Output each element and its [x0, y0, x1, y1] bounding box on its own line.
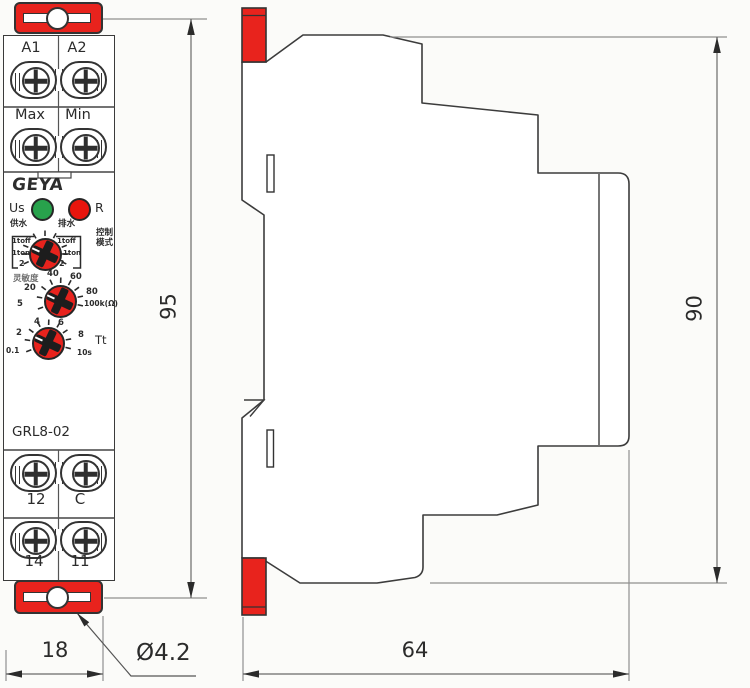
sens-tick-5: 5: [17, 300, 23, 309]
terminal-row-max-min: [10, 128, 107, 166]
screw-min: [72, 134, 100, 162]
screw-max: [22, 134, 50, 162]
relay-led-red: [68, 198, 91, 221]
side-vent-slot-lower: [267, 430, 274, 467]
terminal-a2: [60, 61, 107, 99]
screw-c: [72, 460, 100, 488]
terminal-min: [60, 128, 107, 166]
timer-tick-8: 8: [78, 331, 84, 340]
mode-side-label-2: 模式: [96, 239, 113, 248]
screw-a1: [22, 67, 50, 95]
mode-left-opt-toff: 1toff: [12, 238, 31, 245]
led-label-r: R: [95, 202, 104, 215]
screw-12: [22, 460, 50, 488]
sens-tick-40: 40: [47, 270, 59, 279]
timer-tick-10s: 10s: [77, 349, 92, 357]
sens-tick-20: 20: [24, 284, 36, 293]
terminal-label-c: C: [72, 492, 88, 507]
mode-side-label-1: 控制: [96, 229, 113, 238]
led-label-us: Us: [9, 202, 25, 215]
dim-front-width: 18: [36, 640, 74, 661]
screw-14: [22, 527, 50, 555]
mode-left-opt-2: 2: [19, 260, 25, 268]
dim-front-height: 95: [159, 286, 180, 328]
mode-left-opt-ton: 1ton: [12, 250, 30, 257]
mode-right-opt-ton: 1ton: [63, 250, 81, 257]
sens-tick-80: 80: [86, 288, 98, 297]
screw-a2: [72, 67, 100, 95]
timer-knob[interactable]: [32, 327, 65, 360]
side-view-outline: [242, 35, 629, 583]
terminal-label-min: Min: [62, 108, 94, 123]
model-label: GRL8-02: [12, 426, 70, 440]
terminal-label-a2: A2: [66, 41, 88, 56]
brand-logo: GEYA: [11, 177, 64, 194]
dim-side-height: 90: [685, 288, 706, 330]
power-led-green: [31, 198, 54, 221]
terminal-label-a1: A1: [20, 41, 42, 56]
timer-tick-2: 2: [16, 329, 22, 338]
terminal-label-max: Max: [14, 108, 46, 123]
dim-side-depth: 64: [394, 640, 436, 661]
timer-label: Tt: [95, 335, 107, 347]
mode-heading-supply: 供水: [10, 220, 27, 229]
timer-tick-6: 6: [58, 319, 64, 328]
mode-right-opt-toff: 1toff: [57, 238, 76, 245]
terminal-max: [10, 128, 57, 166]
mode-heading-drain: 排水: [58, 220, 75, 229]
terminal-c: [60, 454, 107, 492]
terminal-label-11: 11: [69, 554, 91, 569]
side-view: [242, 8, 629, 615]
terminal-a1: [10, 61, 57, 99]
sens-tick-60: 60: [70, 273, 82, 282]
top-mount-hole: [46, 7, 69, 30]
side-vent-slot-upper: [267, 155, 274, 192]
technical-drawing-grl8-relay: { "front": { "top_terminals": ["A1", "A2…: [0, 0, 750, 688]
screw-11: [72, 527, 100, 555]
mode-right-opt-2: 2: [59, 260, 65, 268]
bottom-mount-hole: [46, 586, 69, 609]
terminal-row-a1-a2: [10, 61, 107, 99]
drawing-linework: [0, 0, 750, 688]
terminal-label-12: 12: [25, 492, 47, 507]
timer-tick-01: 0.1: [6, 347, 19, 355]
timer-tick-4: 4: [34, 318, 40, 327]
terminal-12: [10, 454, 57, 492]
dim-hole-diameter: Ø4.2: [136, 642, 191, 665]
sensitivity-knob[interactable]: [44, 285, 77, 318]
terminal-row-12-c: [10, 454, 107, 492]
sens-unit: 100k(Ω): [84, 300, 118, 308]
terminal-label-14: 14: [22, 554, 46, 569]
